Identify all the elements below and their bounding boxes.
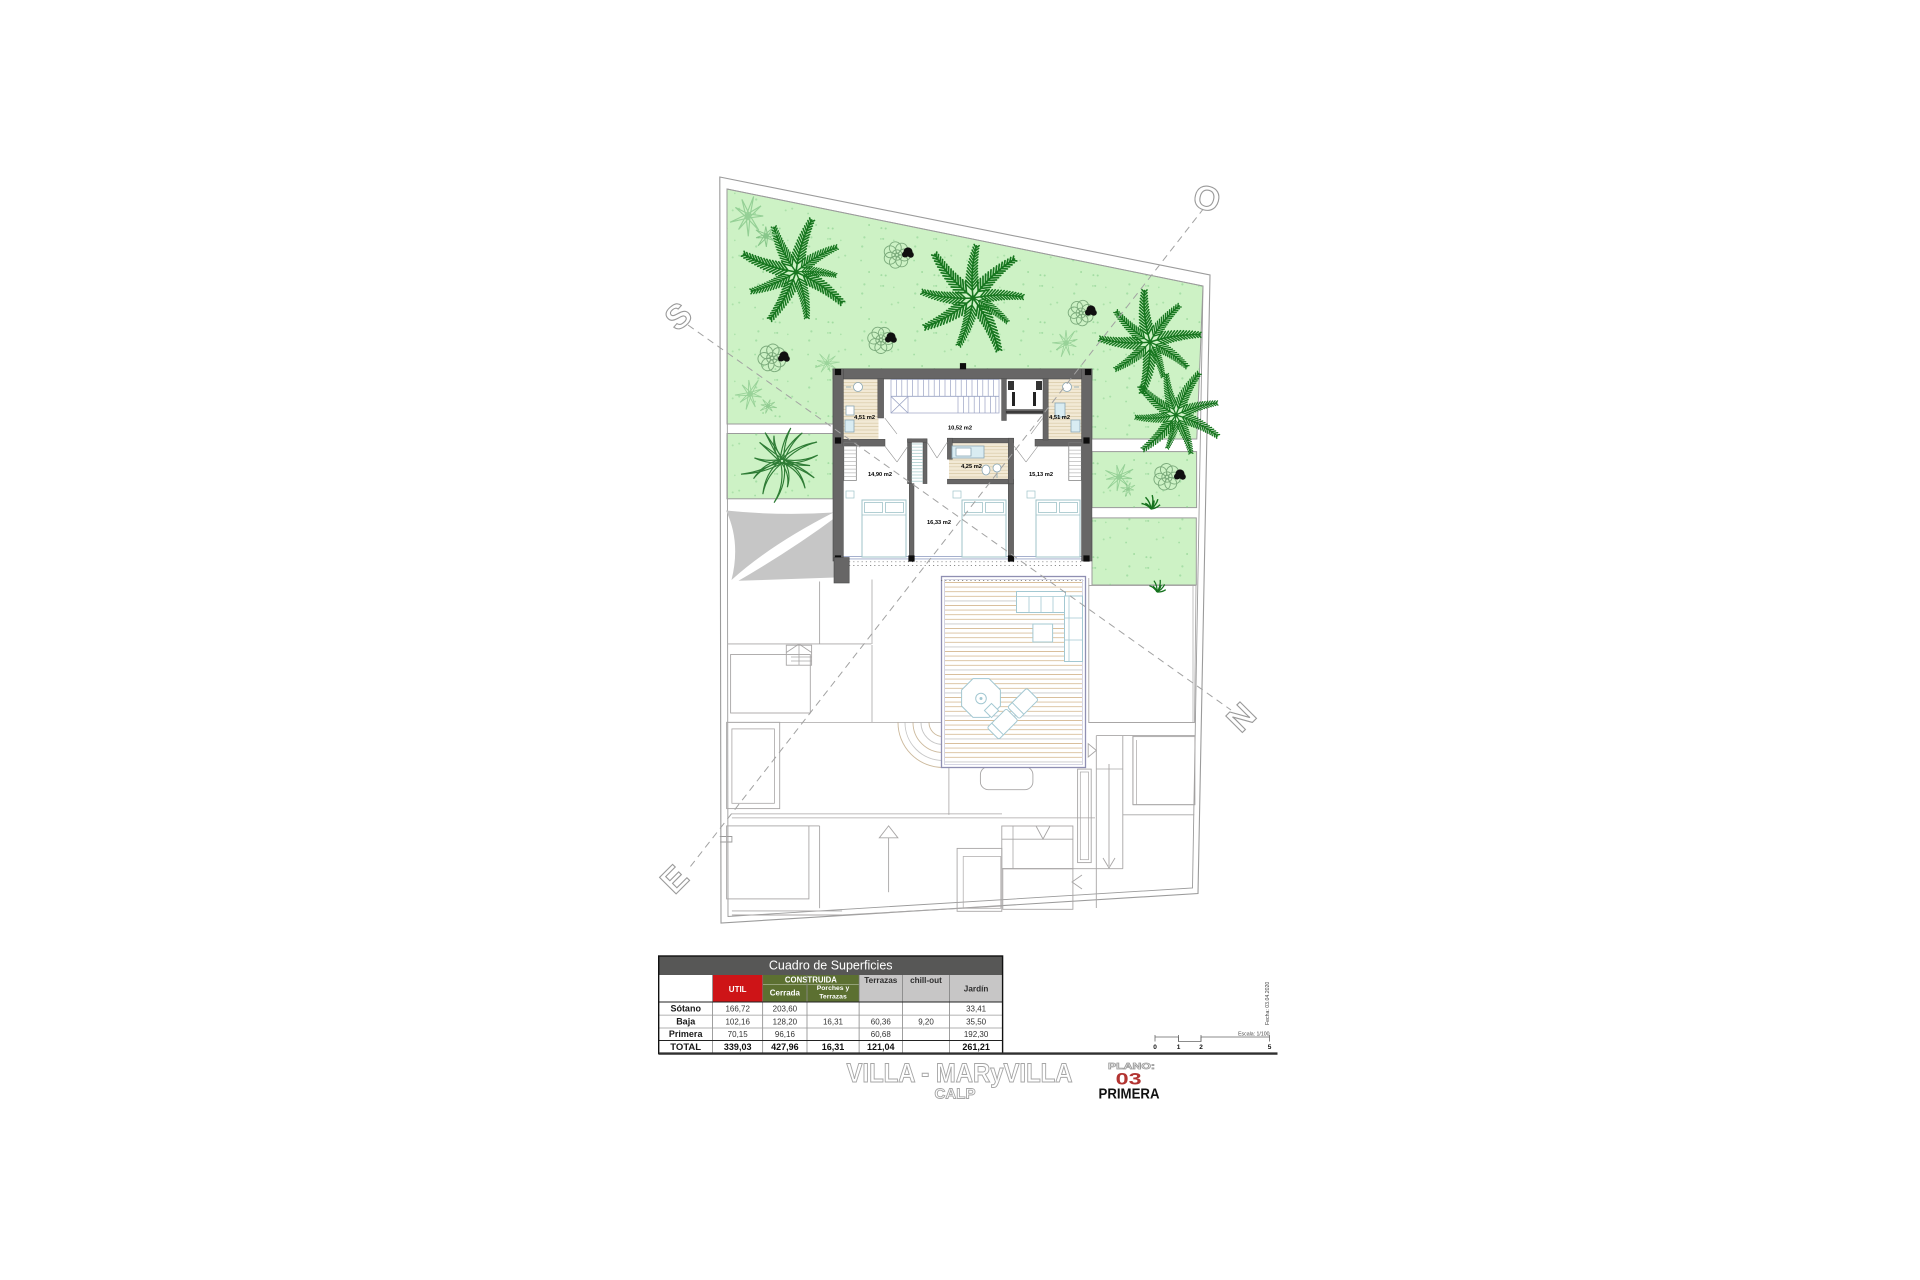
svg-text:CALP: CALP — [935, 1086, 976, 1103]
svg-text:Terrazas: Terrazas — [864, 976, 898, 985]
svg-text:4,25 m2: 4,25 m2 — [961, 464, 982, 470]
svg-text:60,36: 60,36 — [871, 1018, 892, 1027]
svg-text:PRIMERA: PRIMERA — [1099, 1086, 1160, 1103]
svg-text:Cuadro de Superficies: Cuadro de Superficies — [769, 959, 893, 973]
svg-text:128,20: 128,20 — [773, 1018, 798, 1027]
svg-text:4,51 m2: 4,51 m2 — [854, 415, 875, 421]
svg-text:35,50: 35,50 — [966, 1018, 987, 1027]
svg-text:chill-out: chill-out — [910, 976, 942, 985]
svg-text:16,33 m2: 16,33 m2 — [927, 520, 951, 526]
svg-text:Sótano: Sótano — [670, 1004, 701, 1014]
svg-text:CONSTRUIDA: CONSTRUIDA — [785, 976, 837, 985]
svg-text:2: 2 — [1199, 1044, 1203, 1051]
svg-text:96,16: 96,16 — [775, 1030, 796, 1039]
svg-text:Porches y: Porches y — [817, 985, 850, 992]
svg-text:10,52 m2: 10,52 m2 — [948, 426, 972, 432]
svg-text:Cerrada: Cerrada — [770, 989, 801, 998]
svg-text:16,31: 16,31 — [822, 1042, 845, 1052]
svg-text:TOTAL: TOTAL — [670, 1042, 701, 1053]
svg-text:261,21: 261,21 — [962, 1042, 990, 1052]
svg-text:427,96: 427,96 — [771, 1042, 799, 1052]
svg-text:0: 0 — [1153, 1044, 1157, 1051]
svg-text:14,90 m2: 14,90 m2 — [868, 472, 892, 478]
svg-text:VILLA - MARyVILLA: VILLA - MARyVILLA — [847, 1058, 1073, 1088]
svg-text:Escala: 1/100: Escala: 1/100 — [1238, 1032, 1270, 1038]
svg-text:4,51 m2: 4,51 m2 — [1049, 415, 1070, 421]
svg-text:121,04: 121,04 — [867, 1042, 895, 1052]
svg-text:5: 5 — [1268, 1044, 1272, 1051]
svg-text:166,72: 166,72 — [725, 1005, 750, 1014]
svg-text:203,60: 203,60 — [773, 1005, 798, 1014]
svg-text:Primera: Primera — [669, 1029, 704, 1039]
svg-text:102,16: 102,16 — [725, 1018, 750, 1027]
svg-text:Fecha: 03.04.2020: Fecha: 03.04.2020 — [1265, 982, 1271, 1025]
svg-text:16,31: 16,31 — [823, 1018, 844, 1027]
svg-text:33,41: 33,41 — [966, 1005, 987, 1014]
svg-text:9,20: 9,20 — [918, 1018, 934, 1027]
svg-text:15,13 m2: 15,13 m2 — [1029, 472, 1053, 478]
svg-text:UTIL: UTIL — [729, 985, 747, 994]
svg-text:70,15: 70,15 — [728, 1030, 749, 1039]
svg-text:Terrazas: Terrazas — [819, 994, 847, 1001]
svg-text:Baja: Baja — [676, 1017, 696, 1027]
svg-text:192,30: 192,30 — [964, 1030, 989, 1039]
svg-text:339,03: 339,03 — [724, 1042, 752, 1052]
svg-text:1: 1 — [1177, 1044, 1181, 1051]
svg-text:60,68: 60,68 — [871, 1030, 892, 1039]
svg-text:Jardín: Jardín — [964, 985, 989, 994]
